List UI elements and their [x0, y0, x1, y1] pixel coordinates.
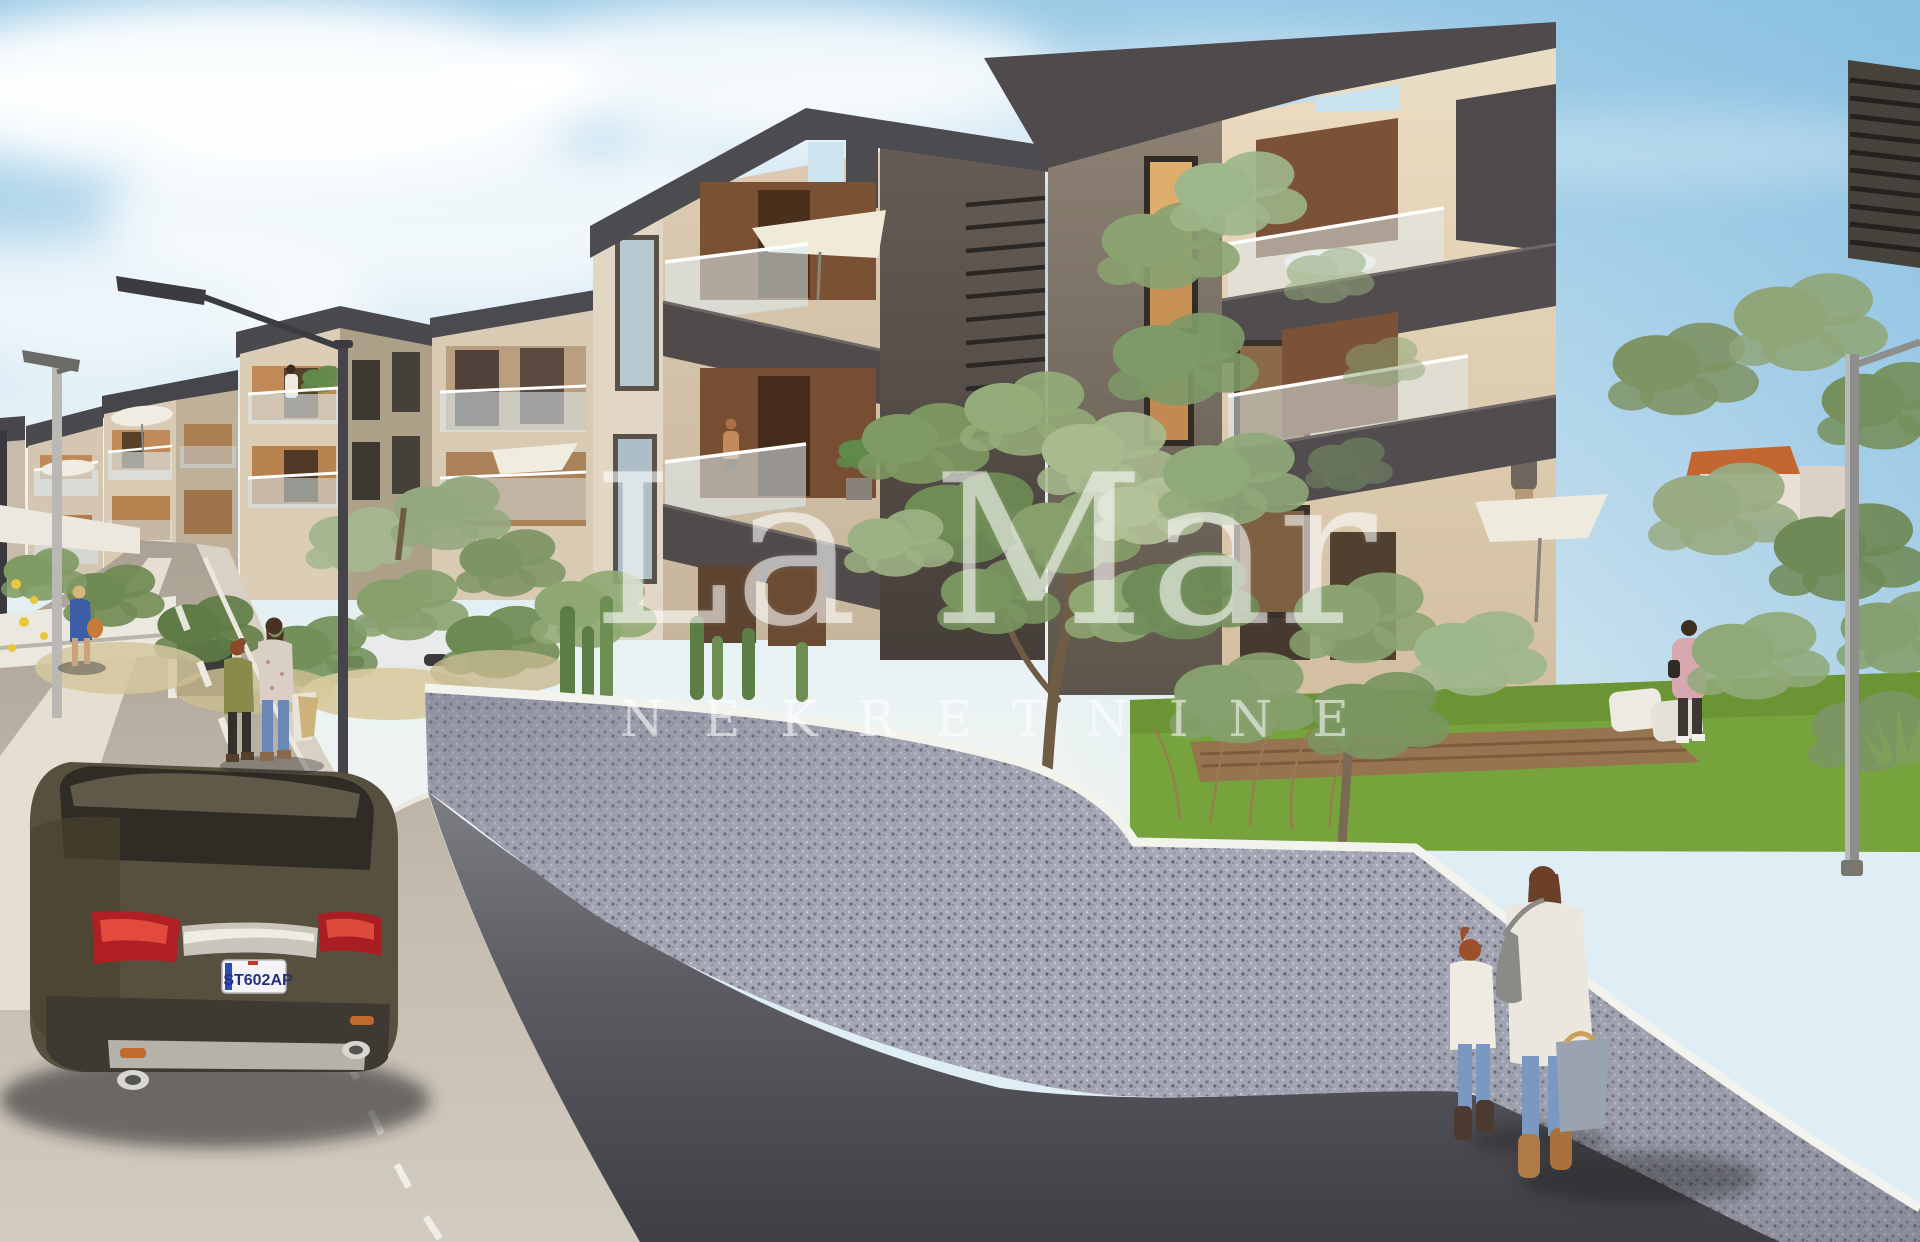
- license-plate-text: ST602AP: [223, 972, 293, 989]
- parked-suv: ST602AP: [0, 762, 430, 1148]
- render-image: ST602AP: [0, 0, 1920, 1242]
- license-plate: ST602AP: [222, 960, 293, 993]
- scene: ST602AP: [0, 0, 1920, 1242]
